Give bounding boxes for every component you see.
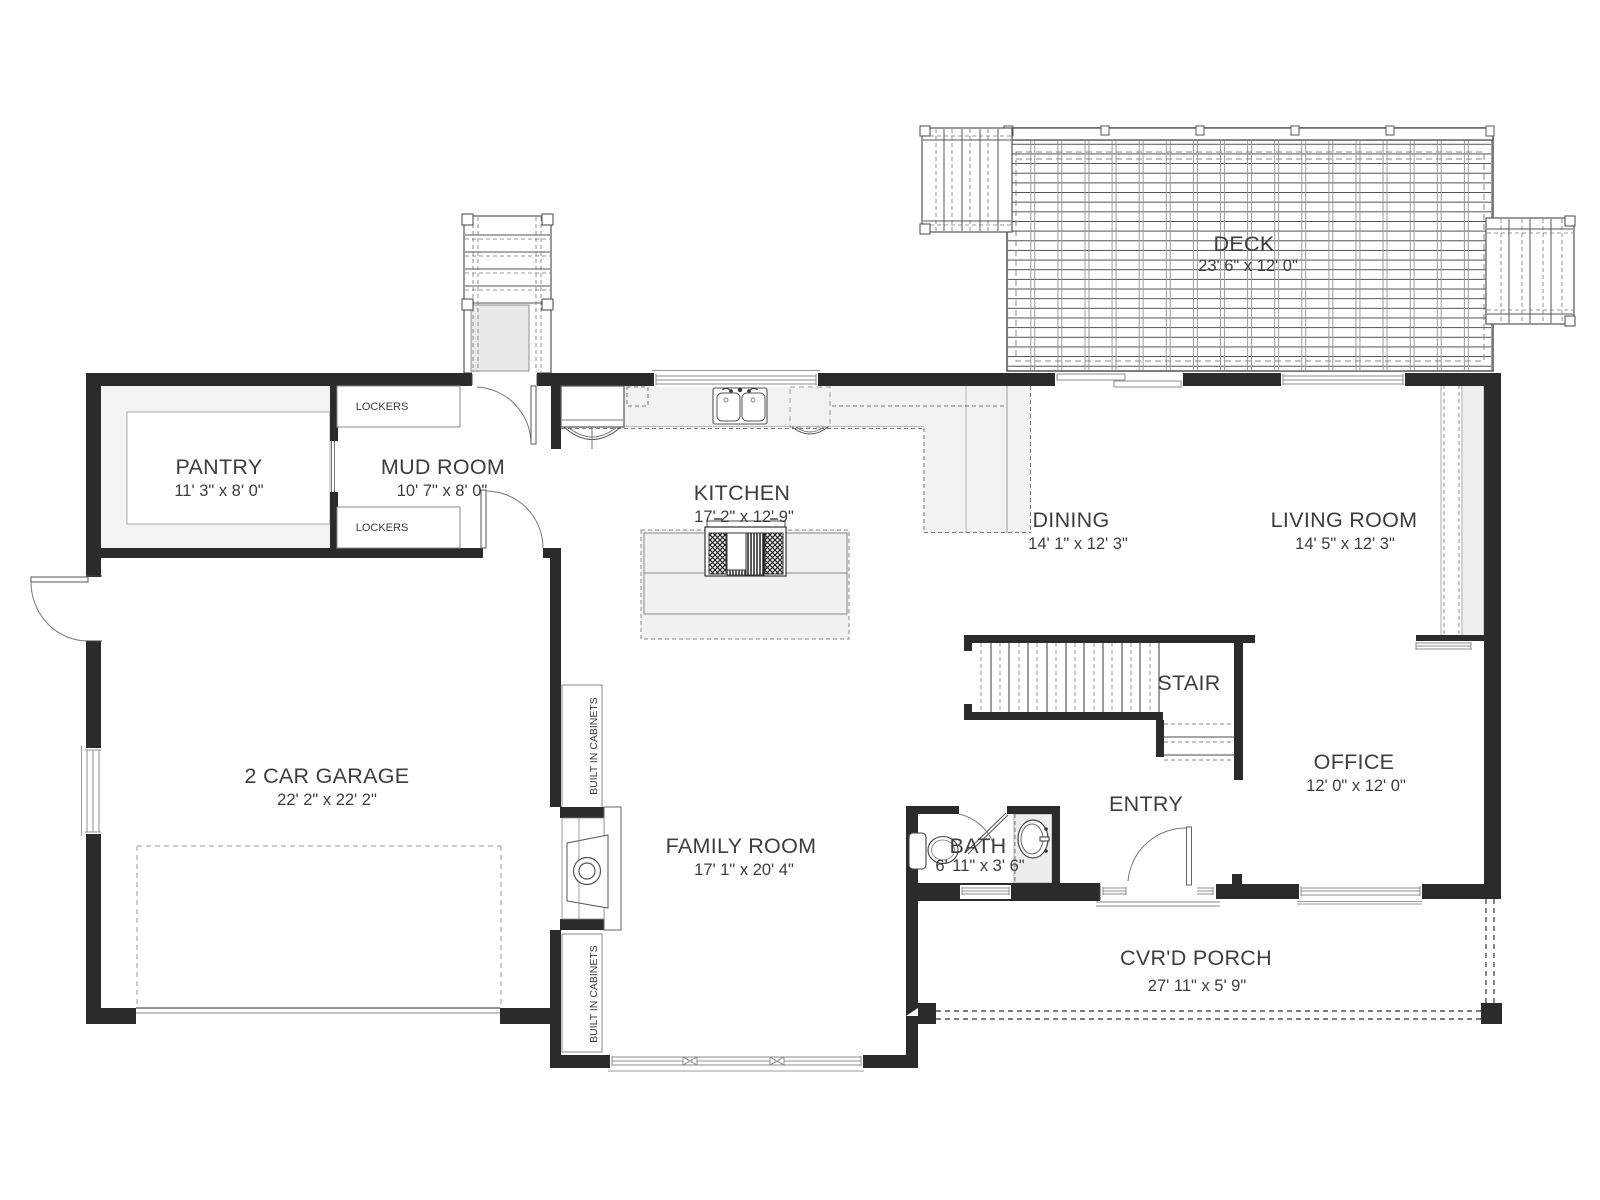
svg-text:DECK: DECK (1214, 232, 1275, 256)
svg-text:14' 5" x 12' 3": 14' 5" x 12' 3" (1295, 535, 1395, 553)
svg-text:27' 11" x 5' 9": 27' 11" x 5' 9" (1148, 977, 1247, 995)
svg-text:17' 1" x 20' 4": 17' 1" x 20' 4" (694, 861, 794, 879)
svg-text:23' 6" x 12' 0": 23' 6" x 12' 0" (1198, 257, 1298, 275)
svg-text:2 CAR GARAGE: 2 CAR GARAGE (245, 764, 410, 788)
svg-text:11' 3" x 8' 0": 11' 3" x 8' 0" (174, 482, 263, 500)
svg-text:CVR'D PORCH: CVR'D PORCH (1120, 946, 1272, 970)
svg-text:6' 11" x 3' 6": 6' 11" x 3' 6" (935, 857, 1024, 875)
svg-text:14' 1" x 12' 3": 14' 1" x 12' 3" (1028, 535, 1128, 553)
svg-text:MUD ROOM: MUD ROOM (381, 455, 505, 479)
svg-text:FAMILY ROOM: FAMILY ROOM (666, 834, 817, 858)
svg-text:12' 0" x 12' 0": 12' 0" x 12' 0" (1306, 777, 1406, 795)
svg-text:OFFICE: OFFICE (1314, 750, 1395, 774)
svg-text:STAIR: STAIR (1157, 671, 1220, 695)
svg-text:LIVING ROOM: LIVING ROOM (1271, 508, 1418, 532)
svg-text:22' 2" x 22' 2": 22' 2" x 22' 2" (277, 791, 377, 809)
svg-text:10' 7" x 8' 0": 10' 7" x 8' 0" (397, 482, 488, 500)
svg-text:BUILT IN CABINETS: BUILT IN CABINETS (588, 945, 600, 1043)
svg-text:ENTRY: ENTRY (1109, 792, 1183, 816)
svg-text:PANTRY: PANTRY (175, 455, 262, 479)
svg-text:LOCKERS: LOCKERS (356, 401, 409, 413)
svg-text:LOCKERS: LOCKERS (356, 522, 409, 534)
svg-text:DINING: DINING (1032, 508, 1109, 532)
svg-text:BATH: BATH (950, 834, 1007, 858)
svg-text:KITCHEN: KITCHEN (694, 481, 790, 505)
svg-text:17' 2" x 12' 9": 17' 2" x 12' 9" (694, 508, 794, 526)
svg-text:BUILT IN CABINETS: BUILT IN CABINETS (588, 697, 600, 795)
